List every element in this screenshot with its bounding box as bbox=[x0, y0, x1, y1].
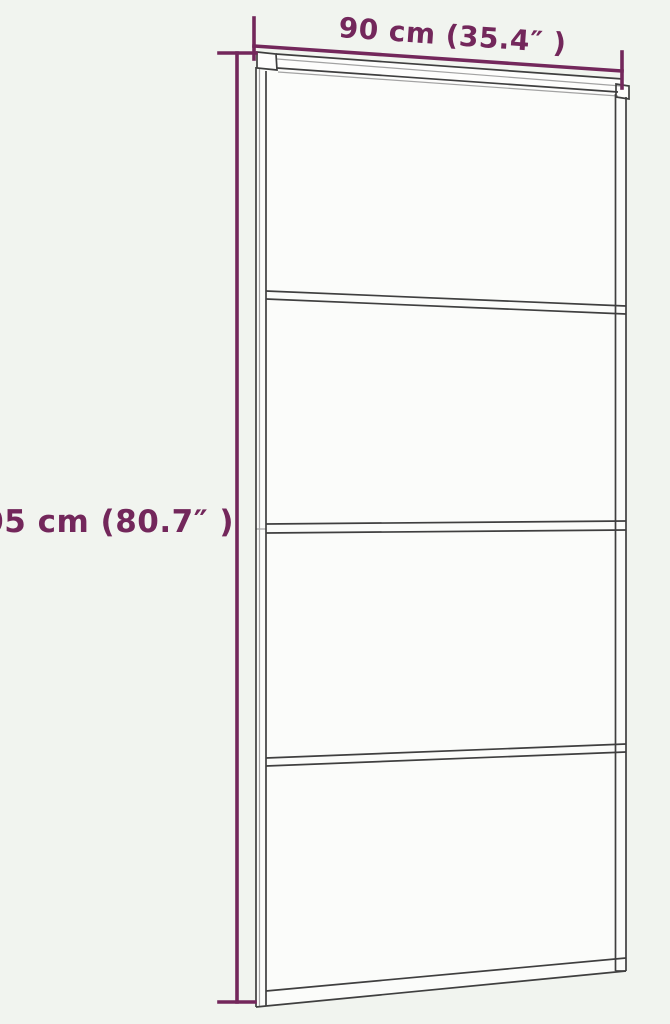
sliding-door-diagram-canvas: 90 cm (35.4″ ) 205 cm (80.7″ ) bbox=[0, 0, 670, 1024]
height-dimension-label: 205 cm (80.7″ ) bbox=[0, 504, 234, 540]
left-stile-bottom-edge bbox=[256, 1006, 266, 1007]
product-dimension-diagram: 90 cm (35.4″ ) 205 cm (80.7″ ) bbox=[0, 0, 670, 1024]
door-glass-panel bbox=[256, 68, 626, 1007]
page-background: { "colors": { "background": "#f1f4ef", "… bbox=[0, 0, 670, 1024]
